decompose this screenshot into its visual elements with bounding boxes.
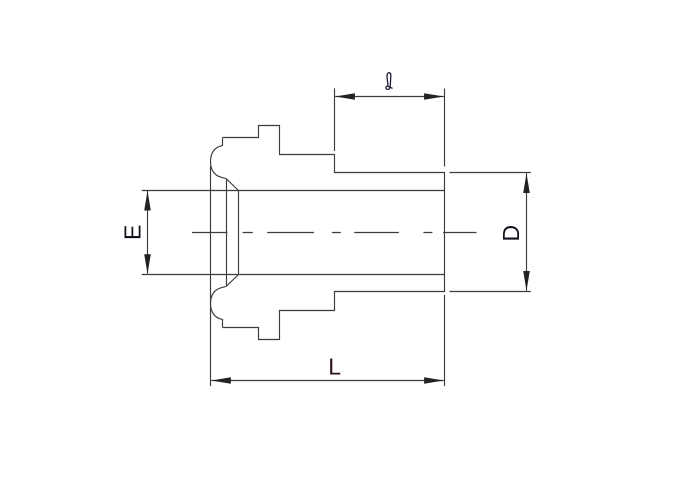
svg-text:E: E (120, 225, 146, 240)
svg-text:L: L (328, 354, 341, 380)
svg-text:D: D (498, 225, 524, 242)
